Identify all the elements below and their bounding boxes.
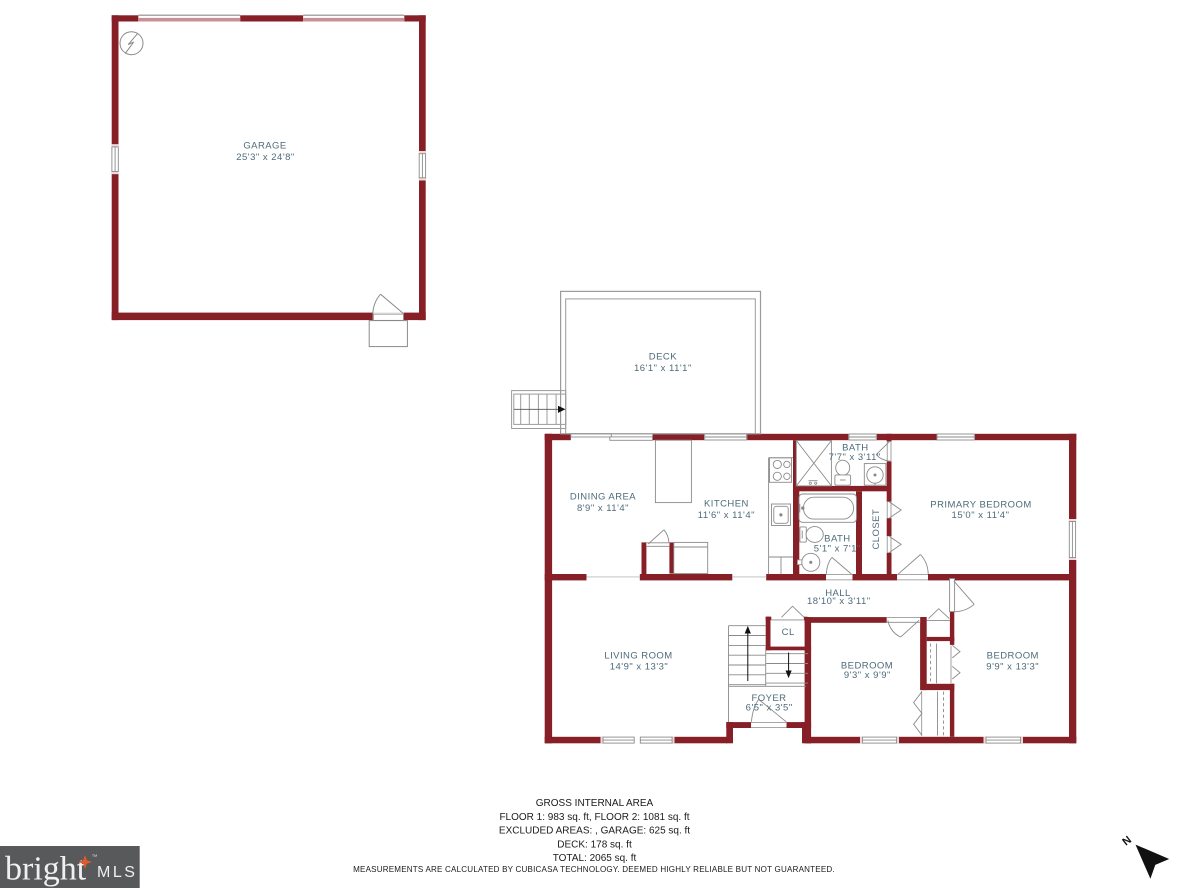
svg-text:FLOOR 1: 983 sq. ft, FLOOR 2:: FLOOR 1: 983 sq. ft, FLOOR 2: 1081 sq. f… [499,812,689,823]
svg-text:BEDROOM: BEDROOM [987,651,1039,662]
svg-text:MLS: MLS [97,864,137,881]
svg-text:KITCHEN: KITCHEN [704,499,749,510]
svg-text:16'1" x 11'1": 16'1" x 11'1" [634,363,692,374]
svg-text:8'9" x 11'4": 8'9" x 11'4" [577,503,629,514]
svg-text:GARAGE: GARAGE [243,141,286,152]
svg-text:bright: bright [5,851,87,888]
svg-text:18'10" x 3'11": 18'10" x 3'11" [807,596,871,607]
svg-text:™: ™ [92,854,98,861]
svg-text:7'7" x 3'11": 7'7" x 3'11" [829,452,881,463]
svg-text:9'9" x 13'3": 9'9" x 13'3" [986,661,1039,672]
svg-text:LIVING ROOM: LIVING ROOM [604,650,672,661]
svg-text:9'3" x 9'9": 9'3" x 9'9" [844,670,891,681]
svg-text:TOTAL: 2065 sq. ft: TOTAL: 2065 sq. ft [553,853,637,864]
svg-text:GROSS INTERNAL AREA: GROSS INTERNAL AREA [536,798,654,809]
svg-text:11'6" x 11'4": 11'6" x 11'4" [698,510,755,521]
svg-text:5'1" x 7'1": 5'1" x 7'1" [814,544,861,555]
svg-text:CLOSET: CLOSET [871,509,882,550]
svg-text:14'9" x 13'3": 14'9" x 13'3" [610,662,669,673]
svg-text:CL: CL [782,627,795,638]
svg-text:DINING AREA: DINING AREA [570,492,636,503]
svg-text:DECK: 178 sq. ft: DECK: 178 sq. ft [557,839,632,850]
svg-text:MEASUREMENTS ARE CALCULATED BY: MEASUREMENTS ARE CALCULATED BY CUBICASA … [353,865,835,874]
svg-text:DECK: DECK [649,352,677,363]
svg-text:EXCLUDED AREAS: , GARAGE: 625: EXCLUDED AREAS: , GARAGE: 625 sq. ft [499,826,690,837]
svg-text:15'0" x 11'4": 15'0" x 11'4" [952,510,1010,521]
svg-text:PRIMARY BEDROOM: PRIMARY BEDROOM [930,499,1031,510]
svg-text:25'3" x 24'8": 25'3" x 24'8" [236,152,295,163]
svg-text:6'5" x 3'5": 6'5" x 3'5" [746,703,793,714]
